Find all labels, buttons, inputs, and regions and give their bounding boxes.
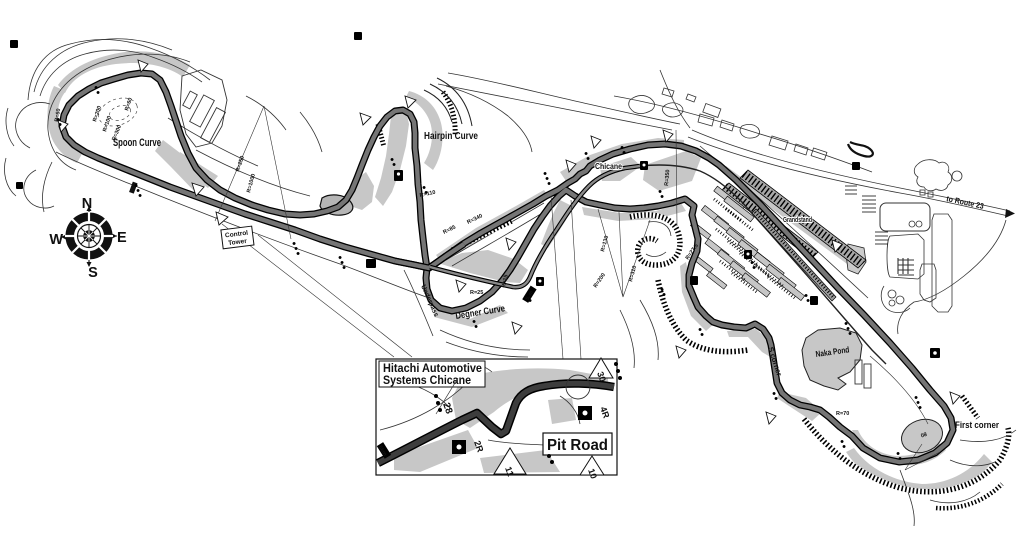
svg-text:W: W xyxy=(49,232,63,248)
svg-text:R=70: R=70 xyxy=(836,411,849,417)
svg-text:S: S xyxy=(88,265,98,281)
svg-text:Spoon Curve: Spoon Curve xyxy=(113,137,161,149)
svg-text:Hitachi Automotive: Hitachi Automotive xyxy=(383,363,482,375)
svg-text:Systems Chicane: Systems Chicane xyxy=(383,375,471,387)
svg-text:N: N xyxy=(82,196,92,212)
svg-text:R=25: R=25 xyxy=(470,290,483,296)
svg-text:E: E xyxy=(117,230,127,246)
svg-text:Pit Road: Pit Road xyxy=(547,437,608,454)
svg-text:First corner: First corner xyxy=(955,420,999,430)
svg-text:Hairpin Curve: Hairpin Curve xyxy=(424,130,478,142)
svg-text:Grandstand: Grandstand xyxy=(783,215,812,224)
svg-text:Chicane: Chicane xyxy=(595,162,622,171)
